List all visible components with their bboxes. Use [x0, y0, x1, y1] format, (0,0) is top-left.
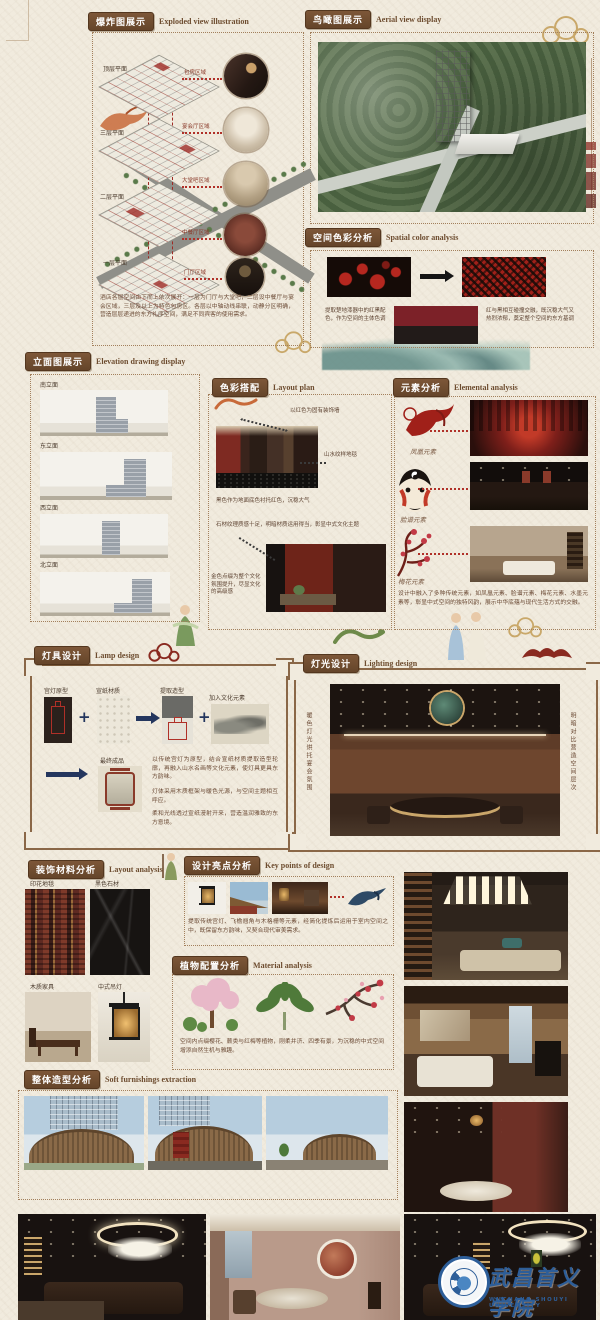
- lantern-body: [112, 1007, 140, 1040]
- lounge-photo: [404, 872, 568, 980]
- banquet-room-photo-2: [210, 1214, 400, 1320]
- plus-icon: +: [78, 708, 91, 726]
- guard-figure-art: [160, 852, 182, 880]
- lamp-step-photo-shape: [162, 696, 193, 744]
- chair: [500, 806, 523, 824]
- section-header-plants: 植物配置分析 Material analysis: [172, 956, 312, 975]
- callout-photo-private-room: [224, 54, 268, 98]
- callout-line: [182, 186, 222, 188]
- section-title-en: Lamp design: [95, 651, 139, 660]
- lamp-step-photo-prototype: [44, 697, 72, 743]
- corridor-ceiling: [216, 426, 318, 436]
- plants-description: 空间内点缀樱花、蕨类与红梅等植物，刚柔并济、四季有景，为沉稳的中式空间增添自然生…: [180, 1038, 384, 1062]
- section-header-color: 空间色彩分析 Spatial color analysis: [305, 228, 458, 247]
- round-table: [256, 1288, 328, 1309]
- headboard-art: [420, 1010, 469, 1041]
- marble-texture-photo: [90, 889, 150, 975]
- tv-panel: [535, 1041, 561, 1076]
- private-dining-photo: [404, 1102, 568, 1212]
- section-title-en: Soft furnishings extraction: [105, 1075, 196, 1084]
- element-label-phoenix: 凤凰元素: [410, 448, 436, 457]
- elevation-label: 北立面: [40, 560, 58, 569]
- tea-table: [34, 1040, 80, 1047]
- lamp-step-photo-painting: [211, 704, 269, 744]
- window-screen: [567, 532, 584, 569]
- corridor-floor: [216, 473, 318, 488]
- note-stone: 石材纹理质感十足，明暗材质运用得当，彰显中式文化主题: [216, 522, 386, 530]
- color-right-note: 红与黑相互碰撞交融，既沉稳大气又热烈浓郁，奠定整个空间的东方基调: [486, 308, 578, 323]
- callout-photo-lobby-bar: [224, 162, 268, 206]
- derived-pattern: [462, 257, 546, 297]
- material-label: 黑色石材: [95, 879, 119, 888]
- ceiling-cornice: [210, 1214, 400, 1231]
- chair: [233, 1290, 256, 1313]
- section-title-en: Layout plan: [273, 383, 315, 392]
- callout-line: [182, 238, 222, 240]
- element-photo-private-room: [470, 526, 588, 582]
- section-header-elevation: 立面图展示 Elevation drawing display: [25, 352, 185, 371]
- dining-table: [390, 797, 500, 818]
- section-title-en: Lighting design: [364, 659, 417, 668]
- transform-arrow-icon: [420, 270, 454, 283]
- callout-line: [184, 278, 222, 280]
- elevation-drawing-west: [40, 514, 168, 558]
- section-ribbon: 灯具设计: [34, 646, 90, 665]
- building-render-2: [148, 1096, 262, 1170]
- lighting-photo: [330, 684, 560, 836]
- section-ribbon: 植物配置分析: [172, 956, 248, 975]
- section-title-en: Exploded view illustration: [159, 17, 249, 26]
- moon-wall-art: [320, 1242, 354, 1276]
- slat-screen: [24, 1237, 43, 1275]
- elevation-drawing-north: [40, 572, 170, 616]
- lantern-bottom: [109, 1037, 138, 1041]
- building-render-3: [266, 1096, 388, 1170]
- podium-in-render: [455, 134, 519, 154]
- section-ribbon: 空间色彩分析: [305, 228, 381, 247]
- callout-label: 中餐厅区域: [182, 230, 210, 238]
- lamp-step-label: 提取造型: [160, 686, 184, 695]
- keypoint-line: [330, 896, 344, 898]
- cove-light: [344, 734, 546, 736]
- aerial-render-photo: [318, 42, 586, 212]
- section-ribbon: 元素分析: [393, 378, 449, 397]
- elevation-label: 东立面: [40, 441, 58, 450]
- bedroom-photo: [404, 986, 568, 1096]
- color-swatch-red: [394, 306, 478, 326]
- callout-label: 大堂吧区域: [182, 178, 210, 186]
- section-ribbon: 鸟瞰图展示: [305, 10, 371, 29]
- section-ribbon: 灯光设计: [303, 654, 359, 673]
- lamp-step-label: 宣纸材质: [96, 686, 120, 695]
- corridor-photo: [216, 426, 318, 488]
- sofa-row: [460, 950, 562, 972]
- skylight-grid: [443, 876, 532, 904]
- tower-in-render: [436, 50, 470, 142]
- section-title-en: Spatial color analysis: [386, 233, 458, 242]
- lamp-final-label: 最终成品: [100, 756, 124, 765]
- callout-label: 门厅区域: [184, 270, 206, 278]
- callout-label: 宴会厅区域: [182, 124, 210, 132]
- elevation-label: 南立面: [40, 380, 58, 389]
- wood-furniture-photo: [25, 992, 91, 1062]
- element-label-plum: 梅花元素: [398, 578, 424, 587]
- hanging-art: [522, 471, 530, 483]
- round-table: [440, 1181, 512, 1201]
- element-photo-stage: [470, 400, 588, 456]
- lamp-step-photo-paper: [97, 696, 130, 744]
- callout-photo-restaurant: [224, 214, 266, 256]
- lighting-right-note: 明暗对比营造空间层次: [568, 712, 577, 812]
- lamp-step-label: 宫灯原型: [44, 686, 68, 695]
- university-name-en: WUCHANG SHOUYI UNIVERSITY: [489, 1297, 600, 1309]
- element-photo-restaurant: [470, 462, 588, 510]
- element-label-mask: 脸谱元素: [400, 516, 426, 525]
- reception-desk: [280, 594, 335, 605]
- section-header-aerial: 鸟瞰图展示 Aerial view display: [305, 10, 441, 29]
- element-line: [418, 553, 468, 555]
- cloud-sculpture: [108, 1237, 172, 1260]
- design-board: 爆炸图展示 Exploded view illustration 顶层平面 三层…: [0, 0, 600, 1320]
- section-ribbon: 设计亮点分析: [184, 856, 260, 875]
- console-vase: [368, 1282, 381, 1310]
- hanging-art: [543, 471, 551, 483]
- note-carpet: 山水纹样地毯: [324, 452, 386, 460]
- section-ribbon: 色彩搭配: [212, 378, 268, 397]
- red-bat-ornament: [520, 642, 574, 664]
- section-header-layout: 色彩搭配 Layout plan: [212, 378, 315, 397]
- teppan-counter: [18, 1301, 104, 1320]
- section-title-en: Key points of design: [265, 861, 334, 870]
- exploded-description: 酒店各层空间由下而上依次展开：一层为门厅与大堂吧，二层设中餐厅与宴会区域，三层及…: [100, 294, 294, 338]
- window-curtain: [225, 1231, 252, 1278]
- floor-label: 一层平面: [103, 258, 127, 267]
- tree-in-render: [278, 1142, 290, 1158]
- banquet-room-photo-1: [18, 1214, 206, 1320]
- bed: [417, 1056, 492, 1087]
- color-swatch-black: [394, 326, 478, 344]
- cloud-sculpture: [519, 1233, 580, 1256]
- keypoint-photo-eaves: [230, 882, 268, 914]
- callout-photo-entrance: [226, 258, 264, 296]
- step-arrow-icon: [136, 712, 160, 725]
- elevation-drawing-east: [40, 452, 172, 500]
- floor-label: 三层平面: [100, 128, 124, 137]
- university-emblem: [438, 1256, 490, 1308]
- leader-line: [300, 462, 326, 464]
- section-header-massing: 整体造型分析 Soft furnishings extraction: [24, 1070, 196, 1089]
- lighting-left-note: 暖色灯光烘托宴会氛围: [304, 712, 313, 812]
- callout-photo-banquet: [224, 108, 268, 152]
- keypoint-photo-lantern: [188, 882, 226, 914]
- lamp-paragraph-1: 以传统宫灯为原型，结合宣纸材质提取造型轮廓，再融入山水名画等文化元素，使灯具更具…: [152, 756, 278, 780]
- red-entry-screen: [173, 1132, 189, 1159]
- chair-back: [29, 1028, 36, 1046]
- section-ribbon: 装饰材料分析: [28, 860, 104, 879]
- lamp-paragraph-3: 柔和光线透过宣纸漫射开来，营造温润雅致的东方意境。: [152, 810, 278, 826]
- material-label: 印花地毯: [30, 879, 54, 888]
- lamp-paragraph-2: 灯体采用木质框架与暖色光源，与空间主题相互呼应。: [152, 788, 278, 802]
- note-floor: 黑色作为地面底色衬托红色，沉稳大气: [216, 498, 386, 506]
- carpet-texture-photo: [25, 889, 85, 975]
- table-leg: [75, 1047, 78, 1057]
- corner-line-ornament: [6, 0, 29, 41]
- note-gold: 金色点缀为整个文化氛围提升，尽显文化的高级感: [211, 574, 261, 597]
- section-ribbon: 整体造型分析: [24, 1070, 100, 1089]
- material-label: 木质家具: [30, 982, 54, 991]
- wood-lattice: [404, 872, 432, 980]
- plus-icon: +: [198, 708, 211, 726]
- lantern-photo: [98, 992, 150, 1062]
- elevation-drawing-south: [40, 390, 168, 436]
- callout-line: [182, 78, 222, 80]
- university-name-zh: 武昌首义学院: [488, 1262, 600, 1320]
- section-title-en: Aerial view display: [376, 15, 441, 24]
- section-title-en: Material analysis: [253, 961, 312, 970]
- section-header-exploded: 爆炸图展示 Exploded view illustration: [88, 12, 249, 31]
- pendant-lamp: [470, 1115, 483, 1126]
- section-title-en: Layout analysis: [109, 865, 163, 874]
- lantern-cord: [123, 992, 125, 1003]
- section-ribbon: 立面图展示: [25, 352, 91, 371]
- lacquer-pattern-source: [327, 257, 411, 297]
- keypoint-photo-interior: [272, 882, 328, 914]
- section-title-en: Elemental analysis: [454, 383, 518, 392]
- note-red-wall: 以红色为固有装饰墙: [290, 408, 384, 416]
- lamp-final-photo: [98, 766, 142, 812]
- plant-in-lobby: [292, 584, 306, 596]
- section-header-lamp: 灯具设计 Lamp design: [34, 646, 139, 665]
- floor-label: 二层平面: [100, 192, 124, 201]
- section-title-en: Elevation drawing display: [96, 357, 185, 366]
- table-leg: [38, 1047, 41, 1057]
- element-line: [430, 430, 468, 432]
- color-left-note: 提取楚地漆器中的红黑配色，作为空间的主体色调: [325, 308, 389, 323]
- building-render-1: [24, 1096, 144, 1170]
- element-line: [418, 488, 468, 490]
- section-ribbon: 爆炸图展示: [88, 12, 154, 31]
- white-sofa: [503, 561, 555, 576]
- elements-description: 设计中融入了多种传统元素，如凤凰元素、脸谱元素、梅花元素、水墨元素等，彰显中式空…: [398, 590, 588, 622]
- section-header-lighting: 灯光设计 Lighting design: [303, 654, 417, 673]
- keypoints-description: 提取传统宫灯、飞檐翘角与木格栅等元素，经简化提炼后运用于室内空间之中，既保留东方…: [188, 918, 388, 942]
- section-header-keypoints: 设计亮点分析 Key points of design: [184, 856, 334, 875]
- floor-label: 顶层平面: [103, 64, 127, 73]
- callout-line: [182, 132, 222, 134]
- callout-label: 包房区域: [184, 70, 206, 78]
- red-cloud-ornament: [138, 642, 188, 664]
- ottoman: [502, 938, 522, 948]
- material-label: 中式吊灯: [98, 982, 122, 991]
- section-header-materials: 装饰材料分析 Layout analysis: [28, 860, 163, 879]
- moon-art-circle: [431, 692, 463, 724]
- section-header-elements: 元素分析 Elemental analysis: [393, 378, 518, 397]
- elevation-label: 西立面: [40, 503, 58, 512]
- lamp-step-label: 加入文化元素: [209, 693, 245, 702]
- chair: [367, 806, 390, 824]
- result-arrow-icon: [46, 768, 88, 781]
- window-bright: [509, 1006, 532, 1063]
- lobby-photo: [266, 544, 386, 612]
